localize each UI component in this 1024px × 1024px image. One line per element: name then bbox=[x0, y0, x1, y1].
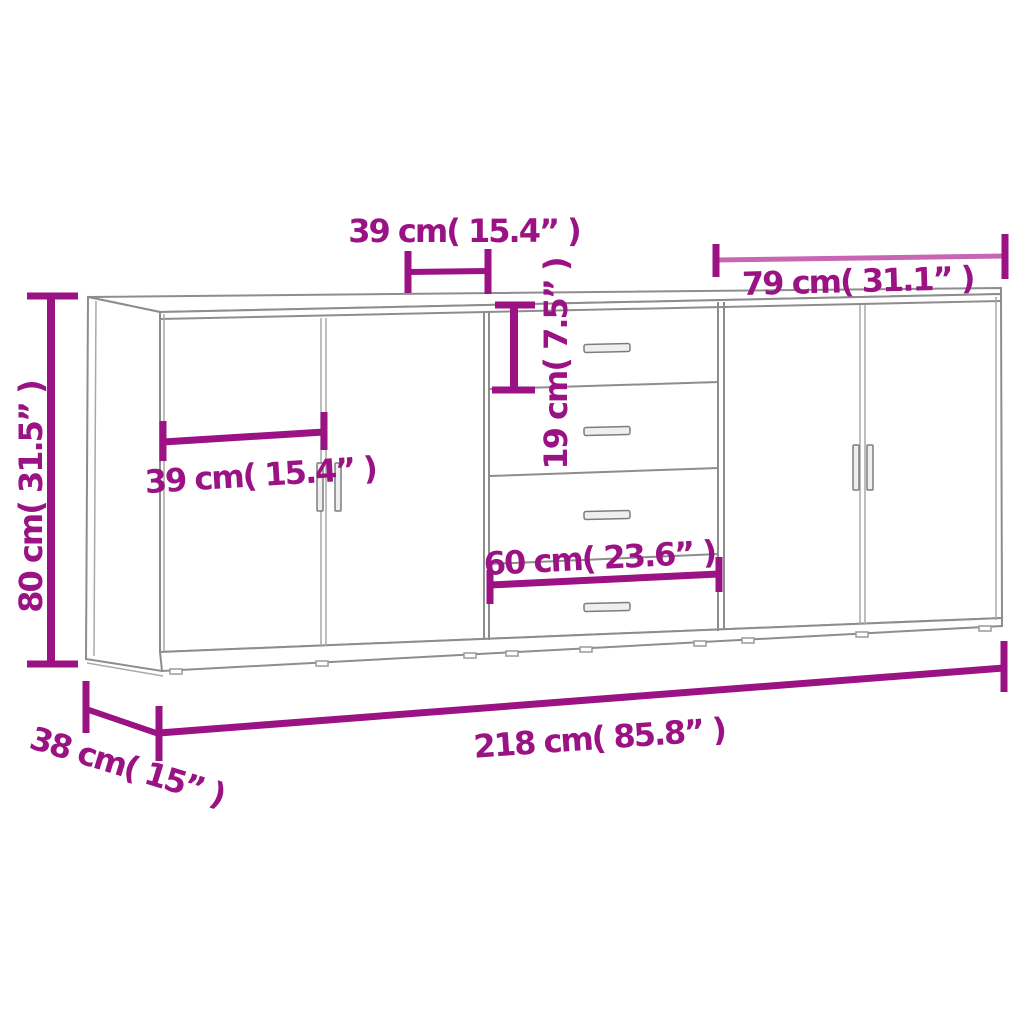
dimension-top-door-width bbox=[408, 249, 488, 294]
depth-dim-line bbox=[86, 709, 159, 734]
sideboards-dimension-diagram: 80 cm( 31.5” ) 39 cm( 15.4” ) 19 cm( 7.5… bbox=[0, 0, 1024, 1024]
drawer-handle-1 bbox=[584, 343, 630, 352]
top-door-width-label: 39 cm( 15.4” ) bbox=[348, 212, 580, 250]
foot bbox=[856, 632, 868, 637]
diagram-canvas: 80 cm( 31.5” ) 39 cm( 15.4” ) 19 cm( 7.5… bbox=[0, 0, 1024, 1024]
foot bbox=[316, 661, 328, 666]
foot bbox=[742, 638, 754, 643]
right-door-handle-right bbox=[867, 445, 873, 490]
drawer-height-label: 19 cm( 7.5” ) bbox=[537, 258, 575, 469]
foot bbox=[170, 669, 182, 674]
drawer-handle-3 bbox=[584, 510, 630, 519]
drawer-handle-2 bbox=[584, 426, 630, 435]
top-width-dim-line bbox=[408, 271, 488, 272]
foot bbox=[464, 653, 476, 658]
height-dim-label: 80 cm( 31.5” ) bbox=[12, 381, 50, 613]
foot bbox=[580, 647, 592, 652]
foot bbox=[694, 641, 706, 646]
right-door-handle-left bbox=[853, 445, 859, 490]
foot bbox=[506, 651, 518, 656]
right-unit-width-label: 79 cm( 31.1” ) bbox=[742, 259, 974, 303]
total-width-label: 218 cm( 85.8” ) bbox=[472, 710, 726, 765]
drawer-handle-4 bbox=[584, 602, 630, 611]
foot bbox=[979, 626, 991, 631]
